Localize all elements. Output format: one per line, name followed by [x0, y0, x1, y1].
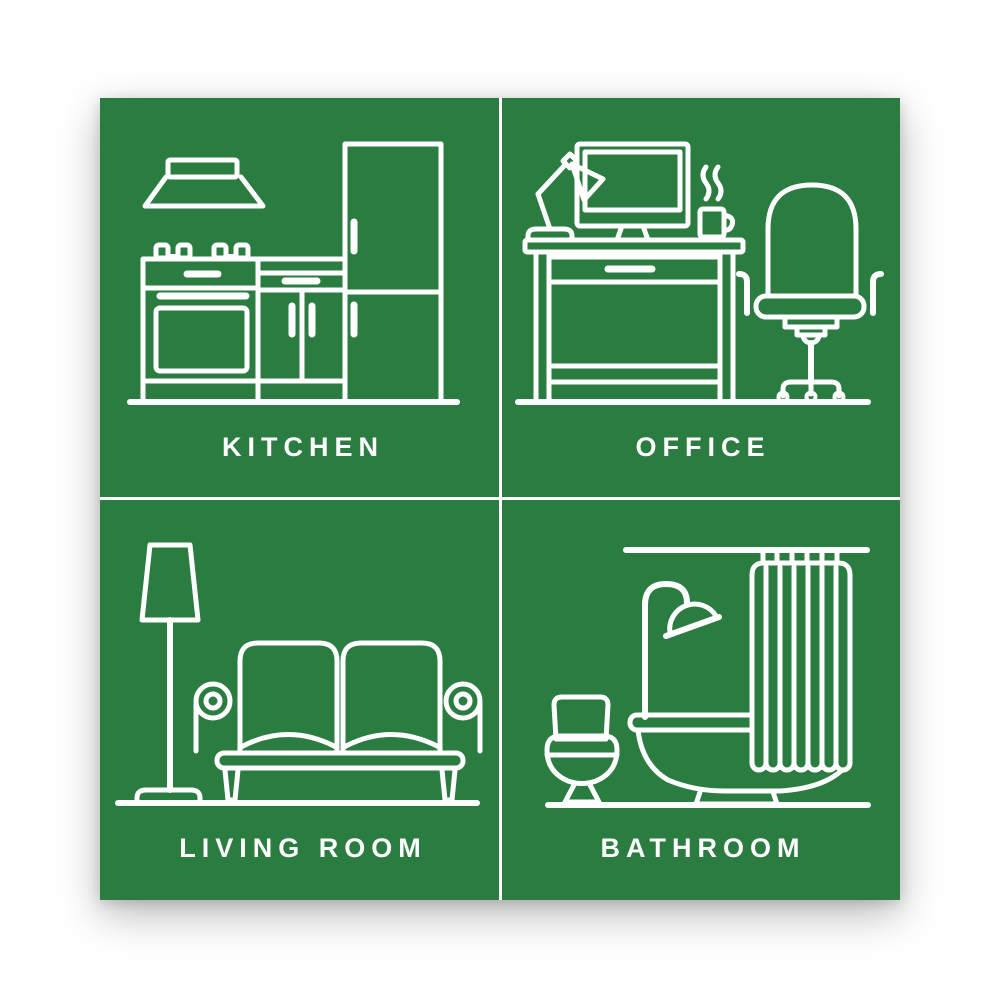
- sofa-icon: [196, 643, 480, 800]
- refrigerator-icon: [345, 144, 441, 402]
- coffee-mug-icon: [700, 167, 733, 237]
- living-room-label: LIVING ROOM: [100, 835, 500, 862]
- office-label: OFFICE: [500, 434, 900, 461]
- bathroom-label: BATHROOM: [500, 835, 900, 862]
- panel-bathroom: BATHROOM: [500, 499, 900, 900]
- office-chair-icon: [739, 185, 881, 402]
- panel-kitchen: KITCHEN: [100, 98, 500, 499]
- cabinet-icon: [258, 259, 345, 381]
- panel-living-room: LIVING ROOM: [100, 499, 500, 900]
- room-signs-poster: KITCHEN: [100, 98, 900, 900]
- desk-icon: [525, 240, 743, 402]
- shower-curtain-icon: [752, 553, 850, 770]
- floor-lamp-icon: [137, 545, 200, 802]
- horizontal-divider-line: [100, 497, 900, 500]
- range-hood-icon: [145, 160, 263, 206]
- panel-office: OFFICE: [500, 98, 900, 499]
- shower-head-icon: [645, 584, 719, 717]
- toilet-icon: [547, 697, 617, 802]
- kitchen-label: KITCHEN: [100, 434, 500, 461]
